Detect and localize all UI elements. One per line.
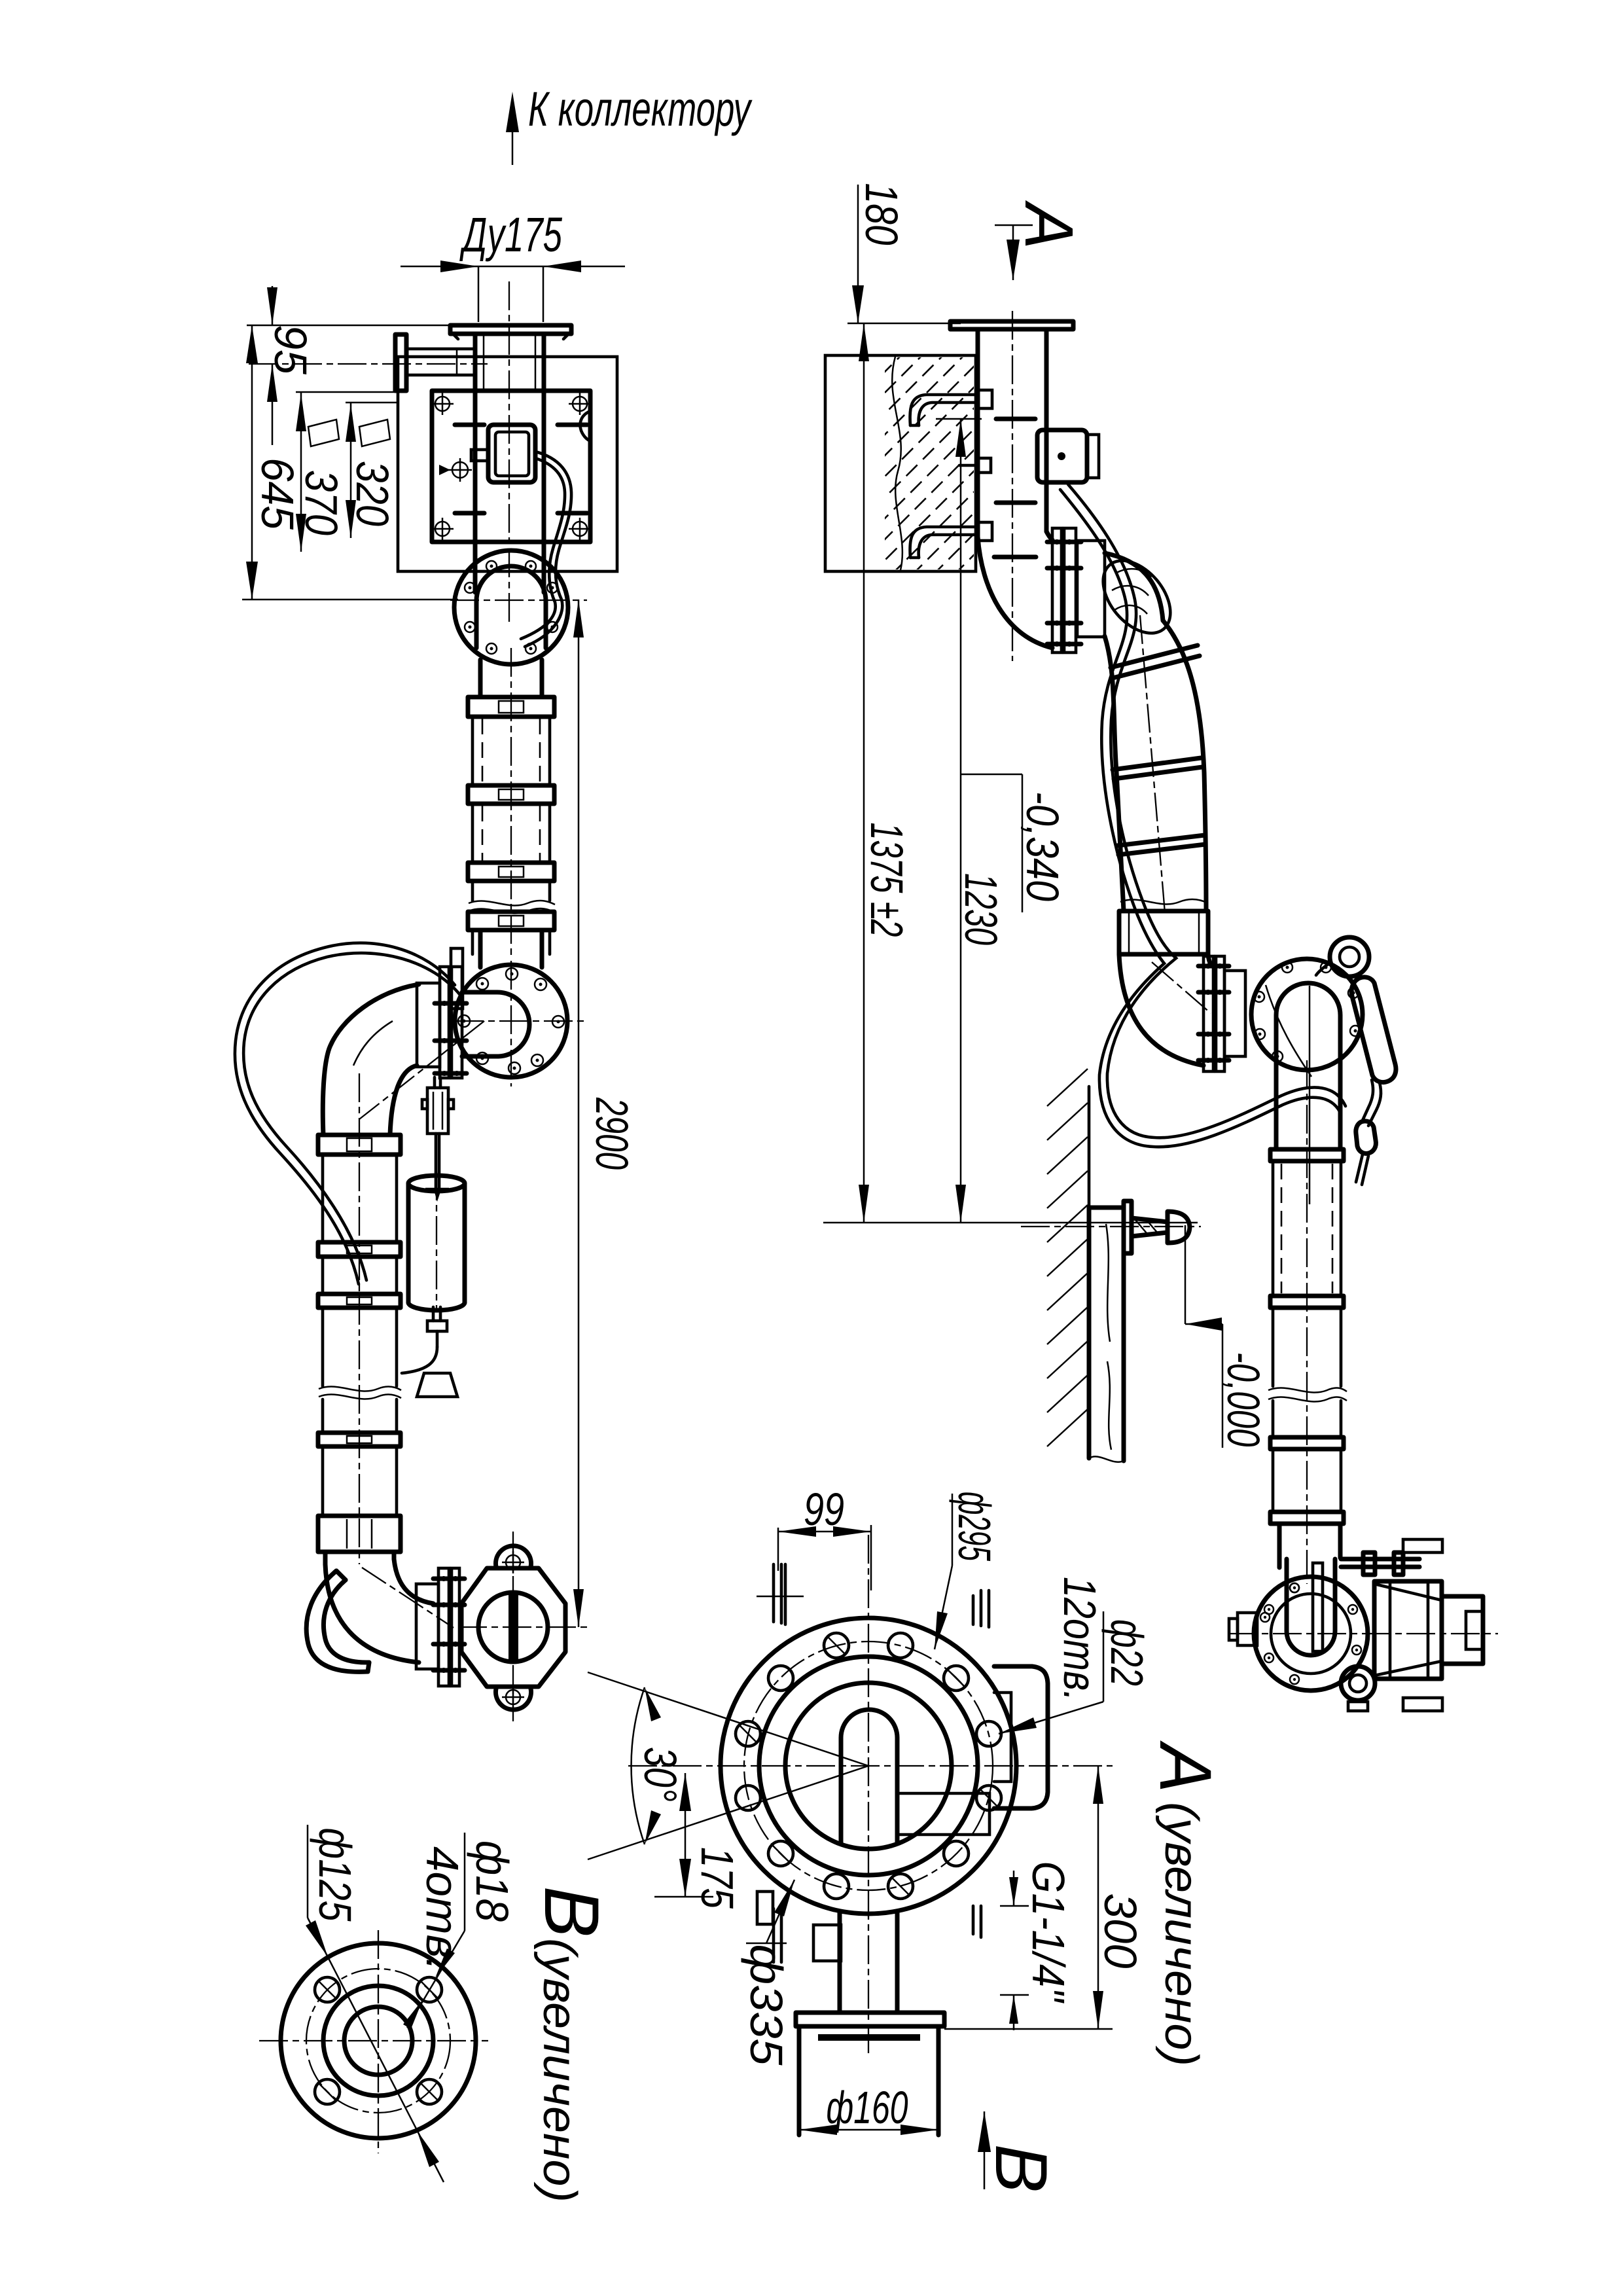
- svg-text:ф125: ф125: [310, 1828, 361, 1922]
- svg-text:180: 180: [856, 183, 907, 245]
- svg-text:(увеличено): (увеличено): [533, 1938, 586, 2202]
- svg-text:95: 95: [265, 325, 316, 375]
- svg-text:В: В: [528, 1886, 615, 1938]
- svg-text:12отв.: 12отв.: [1054, 1577, 1105, 1701]
- svg-text:1375 ±2: 1375 ±2: [861, 823, 912, 937]
- svg-text:30°: 30°: [635, 1747, 686, 1802]
- svg-text:G1-1/4": G1-1/4": [1023, 1861, 1074, 2004]
- svg-text:1230: 1230: [955, 873, 1007, 945]
- svg-text:ф18: ф18: [467, 1840, 518, 1922]
- svg-text:645: 645: [252, 457, 303, 530]
- svg-text:А: А: [1010, 200, 1087, 249]
- svg-text:175: 175: [692, 1847, 743, 1909]
- svg-text:2900: 2900: [586, 1097, 637, 1170]
- svg-text:Ду175: Ду175: [459, 207, 563, 262]
- svg-text:В: В: [980, 2144, 1062, 2193]
- svg-text:ф22: ф22: [1101, 1619, 1152, 1686]
- svg-text:-0,000: -0,000: [1218, 1352, 1269, 1447]
- svg-text:ф295: ф295: [949, 1492, 1000, 1562]
- svg-text:370: 370: [296, 470, 347, 535]
- svg-text:К коллектору: К коллектору: [528, 82, 753, 136]
- svg-text:А: А: [1145, 1740, 1226, 1793]
- svg-text:320: 320: [347, 461, 398, 526]
- svg-text:ф160: ф160: [827, 2082, 908, 2133]
- svg-text:ф335: ф335: [741, 1945, 792, 2066]
- svg-text:4отв.: 4отв.: [417, 1846, 468, 1971]
- svg-text:300: 300: [1095, 1893, 1146, 1969]
- svg-text:-0,340: -0,340: [1017, 791, 1068, 901]
- svg-text:(увеличено): (увеличено): [1155, 1802, 1207, 2066]
